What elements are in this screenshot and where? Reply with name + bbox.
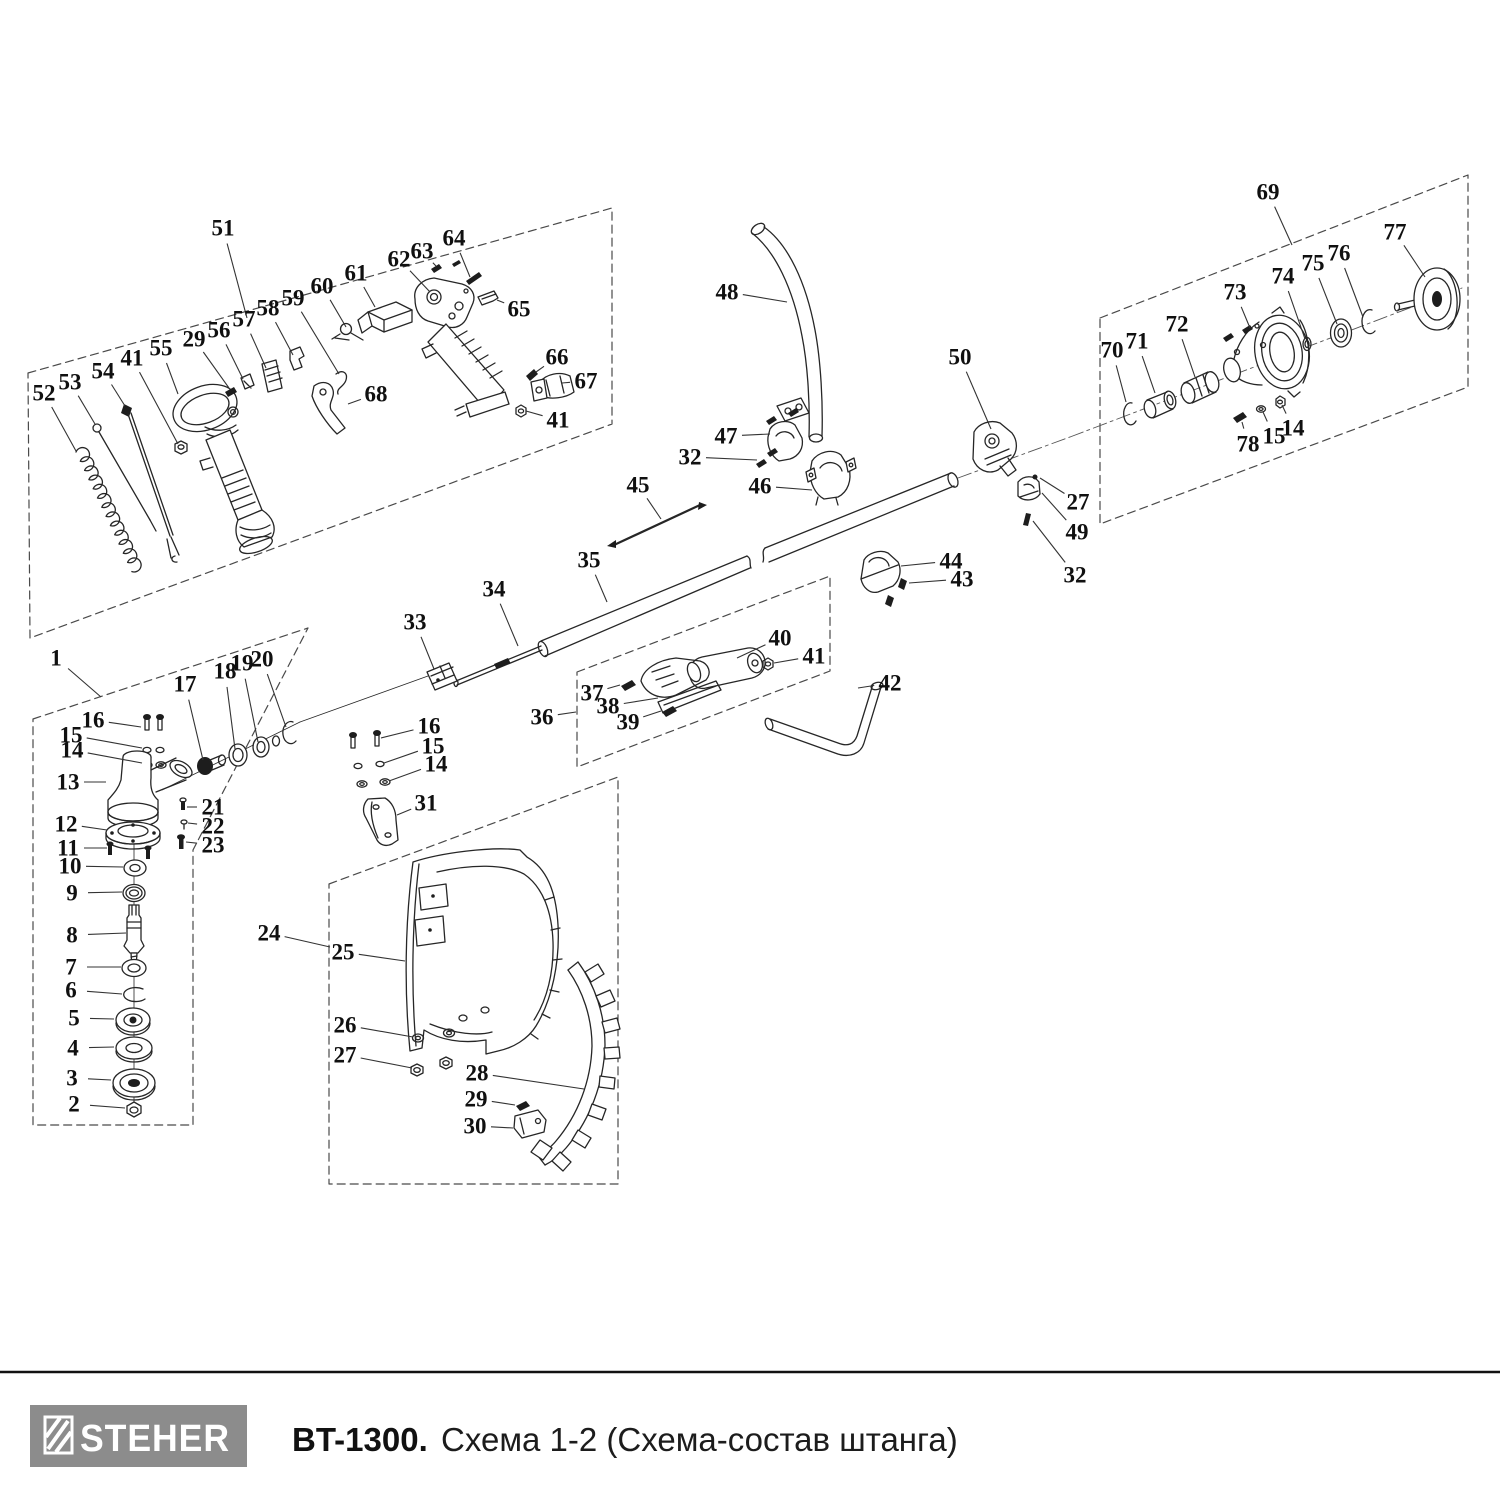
- part-54-cable-sheath: [121, 404, 179, 562]
- leader-line-28: [493, 1075, 584, 1089]
- part-callout-66: 66: [546, 345, 569, 370]
- part-32-screw: [1023, 513, 1031, 526]
- part-callout-32: 32: [679, 445, 702, 470]
- part-18-bearing: [229, 744, 247, 766]
- part-27-screw: [1033, 475, 1038, 480]
- leader-line-33: [421, 637, 434, 669]
- leader-line-15: [1263, 412, 1267, 422]
- part-59-spring-wire: [336, 372, 346, 394]
- leader-line-77: [1404, 245, 1425, 277]
- leader-line-32: [706, 458, 757, 460]
- part-callout-47: 47: [715, 424, 738, 449]
- part-callout-65: 65: [508, 297, 531, 322]
- leader-line-48: [743, 295, 787, 302]
- leader-line-34: [500, 604, 518, 646]
- part-callout-53: 53: [59, 370, 82, 395]
- part-30-bracket: [514, 1110, 546, 1138]
- leader-line-15: [87, 738, 142, 748]
- leader-line-76: [1345, 268, 1363, 317]
- part-50-hanger-bracket: [973, 422, 1016, 476]
- doc-subtitle: Схема 1-2 (Схема-состав штанга): [441, 1421, 958, 1458]
- leader-line-49: [1042, 493, 1066, 520]
- leader-line-64: [460, 253, 470, 277]
- part-77-clutch-drum: [1395, 268, 1461, 330]
- part-71-bushing: [1142, 390, 1177, 419]
- part-16-bolts: [349, 730, 381, 748]
- part-callout-41: 41: [121, 346, 144, 371]
- part-callout-42: 42: [879, 671, 902, 696]
- footer: STEHER BT-1300. Схема 1-2 (Схема-состав …: [0, 1372, 1500, 1467]
- part-callout-49: 49: [1066, 520, 1089, 545]
- part-66-screw: [526, 369, 538, 381]
- part-73-clutch-housing: [1221, 307, 1315, 397]
- doc-model: BT-1300.: [292, 1421, 428, 1458]
- part-33-coupler: [427, 663, 457, 690]
- part-callout-23: 23: [202, 833, 225, 858]
- assembly-clutch-housing: [1124, 268, 1460, 425]
- leader-line-27: [361, 1058, 412, 1068]
- leader-line-65: [497, 300, 504, 303]
- part-callout-14: 14: [1282, 416, 1306, 441]
- part-41-nut: [175, 441, 187, 454]
- part-callout-43: 43: [951, 567, 974, 592]
- part-callout-67: 67: [575, 369, 598, 394]
- part-callout-78: 78: [1237, 432, 1260, 457]
- part-callout-56: 56: [208, 318, 231, 343]
- part-callout-39: 39: [617, 710, 640, 735]
- part-callout-8: 8: [66, 923, 78, 948]
- leader-line-26: [361, 1028, 413, 1037]
- leader-line-37: [607, 685, 620, 689]
- leader-line-43: [909, 580, 946, 583]
- part-callout-20: 20: [251, 647, 274, 672]
- part-callout-25: 25: [332, 940, 355, 965]
- part-3-holder-lower: [113, 1069, 155, 1100]
- part-37-screw: [621, 680, 636, 691]
- leader-line-35: [595, 575, 607, 602]
- part-76-circlip: [1362, 310, 1375, 334]
- part-callout-33: 33: [404, 610, 427, 635]
- leader-line-41: [526, 411, 543, 416]
- leader-line-73: [1241, 307, 1250, 328]
- boundary-handle-assembly: [28, 208, 612, 638]
- leader-line-44: [901, 563, 935, 566]
- leader-line-57: [251, 334, 266, 368]
- part-27-nuts: [411, 1057, 452, 1076]
- part-callout-35: 35: [578, 548, 601, 573]
- leader-line-9: [88, 892, 122, 893]
- part-callout-30: 30: [464, 1114, 487, 1139]
- part-callout-28: 28: [466, 1061, 489, 1086]
- part-9-bearing: [123, 885, 145, 902]
- part-56-clip: [241, 374, 254, 389]
- leader-line-10: [86, 866, 123, 867]
- part-53-cable: [93, 424, 156, 531]
- part-callout-60: 60: [311, 274, 334, 299]
- leader-line-27: [1040, 478, 1065, 494]
- part-78-screw: [1233, 412, 1247, 423]
- leader-line-29: [203, 352, 229, 388]
- part-45-rod: [607, 502, 707, 548]
- part-callout-58: 58: [257, 296, 280, 321]
- leader-line-16: [109, 722, 141, 727]
- part-callout-27: 27: [334, 1043, 357, 1068]
- part-68-throttle-lever: [312, 383, 345, 434]
- part-42-handlebar-left: [764, 681, 884, 755]
- part-callout-1: 1: [50, 646, 62, 671]
- part-15-washer: [1257, 406, 1266, 412]
- part-callout-29: 29: [183, 327, 206, 352]
- leader-line-1: [68, 669, 101, 698]
- part-callout-63: 63: [411, 239, 434, 264]
- leader-line-66: [536, 366, 544, 372]
- leader-line-19: [245, 679, 258, 742]
- part-callout-75: 75: [1302, 251, 1325, 276]
- leader-line-2: [90, 1105, 125, 1108]
- part-62-handle-housing: [415, 278, 509, 417]
- part-callout-36: 36: [531, 705, 554, 730]
- part-callout-72: 72: [1166, 312, 1189, 337]
- part-7-bearing: [122, 960, 146, 977]
- part-25-guard: [406, 849, 562, 1054]
- part-34-drive-shaft: [454, 646, 542, 687]
- leader-line-59: [301, 312, 339, 374]
- part-callout-46: 46: [749, 474, 772, 499]
- part-callout-62: 62: [388, 247, 411, 272]
- part-12-flange: [106, 822, 160, 849]
- part-callout-34: 34: [483, 577, 507, 602]
- leader-line-67: [562, 382, 570, 383]
- part-callout-13: 13: [57, 770, 80, 795]
- leader-line-69: [1275, 207, 1292, 245]
- part-46-clamp-lower: [806, 451, 856, 505]
- part-41-nut: [516, 405, 526, 417]
- part-callout-68: 68: [365, 382, 388, 407]
- leader-line-22: [188, 823, 197, 824]
- part-callout-52: 52: [33, 381, 56, 406]
- part-callout-29: 29: [465, 1087, 488, 1112]
- part-38-grip-housing: [641, 658, 721, 713]
- leader-line-36: [558, 712, 576, 715]
- leader-line-58: [276, 322, 294, 355]
- part-44-hanger-clamp: [861, 551, 907, 607]
- part-17-pinion: [197, 755, 226, 775]
- part-callout-61: 61: [345, 261, 368, 286]
- assembly-throttle-handle: [76, 260, 574, 572]
- leader-line-32: [1033, 521, 1065, 562]
- part-callout-71: 71: [1126, 329, 1149, 354]
- part-4-washer: [116, 1037, 152, 1062]
- part-callout-2: 2: [68, 1092, 80, 1117]
- exploded-parts-diagram: 5152535441552956575859606162636465666741…: [0, 0, 1500, 1500]
- part-2-nut: [127, 1102, 141, 1117]
- part-callout-14: 14: [425, 752, 449, 777]
- part-callout-27: 27: [1067, 490, 1090, 515]
- part-65-clip: [478, 291, 498, 305]
- leader-line-56: [226, 344, 243, 379]
- part-14-washers: [357, 779, 390, 787]
- leader-line-41: [140, 372, 179, 444]
- leader-line-18: [227, 687, 235, 749]
- part-callout-69: 69: [1257, 180, 1280, 205]
- part-callout-51: 51: [212, 216, 235, 241]
- part-5-holder-upper: [116, 1008, 150, 1035]
- part-61-switch: [358, 302, 412, 333]
- part-callout-5: 5: [68, 1006, 80, 1031]
- leader-line-41: [774, 659, 798, 663]
- part-callout-45: 45: [627, 473, 650, 498]
- part-callout-6: 6: [65, 978, 77, 1003]
- leader-line-78: [1242, 422, 1244, 429]
- part-callout-16: 16: [82, 708, 105, 733]
- part-callout-70: 70: [1101, 338, 1124, 363]
- leader-line-72: [1182, 339, 1195, 377]
- leader-line-46: [776, 487, 812, 490]
- leader-line-8: [88, 933, 126, 934]
- leader-line-4: [89, 1047, 114, 1048]
- leader-line-30: [491, 1127, 513, 1128]
- part-16-bolts: [143, 714, 164, 730]
- part-23-bolt: [177, 834, 185, 849]
- part-callout-17: 17: [174, 672, 197, 697]
- leader-line-53: [78, 396, 95, 424]
- part-callout-41: 41: [803, 644, 826, 669]
- leader-line-75: [1319, 278, 1337, 324]
- part-58-lock-button: [290, 347, 304, 370]
- leader-line-52: [52, 407, 76, 451]
- part-22-screw: [181, 820, 187, 829]
- leader-line-39: [643, 711, 661, 717]
- part-8-output-shaft: [124, 905, 144, 967]
- part-callout-76: 76: [1328, 241, 1351, 266]
- part-callout-41: 41: [547, 408, 570, 433]
- part-callout-4: 4: [67, 1036, 79, 1061]
- assembly-gear-head: [106, 714, 296, 1117]
- part-callout-40: 40: [769, 626, 792, 651]
- part-callout-10: 10: [59, 854, 82, 879]
- leader-line-25: [359, 954, 405, 961]
- part-13-gear-head-housing: [108, 751, 195, 827]
- part-callout-32: 32: [1064, 563, 1087, 588]
- leader-line-3: [88, 1079, 111, 1080]
- part-callout-26: 26: [334, 1013, 357, 1038]
- leader-line-31: [397, 809, 411, 815]
- part-callout-7: 7: [65, 955, 77, 980]
- part-60-cable-ring: [332, 324, 363, 341]
- part-55-front-handle: [166, 376, 274, 557]
- part-70-snap-ring: [1124, 403, 1136, 425]
- leader-line-54: [112, 385, 126, 407]
- page: 5152535441552956575859606162636465666741…: [0, 0, 1500, 1500]
- leader-line-17: [189, 700, 203, 760]
- part-callout-31: 31: [415, 791, 438, 816]
- leader-line-55: [167, 363, 179, 394]
- part-callout-12: 12: [55, 812, 78, 837]
- part-67-cable-clamp: [531, 374, 574, 401]
- part-callout-59: 59: [282, 286, 305, 311]
- leader-line-15: [384, 751, 418, 763]
- leader-line-24: [285, 937, 330, 947]
- part-callout-54: 54: [92, 359, 116, 384]
- leader-line-71: [1142, 356, 1155, 393]
- leader-line-23: [186, 842, 197, 843]
- part-callout-57: 57: [233, 307, 256, 332]
- part-49-clamp-half: [1018, 477, 1040, 500]
- leader-line-16: [381, 730, 414, 738]
- part-64-pin: [452, 260, 482, 285]
- part-callout-64: 64: [443, 226, 467, 251]
- part-21-screw: [180, 798, 186, 810]
- assembly-grip: [621, 648, 884, 756]
- leader-line-50: [966, 372, 991, 429]
- part-callout-55: 55: [150, 336, 173, 361]
- brand-logo-text: STEHER: [80, 1418, 230, 1460]
- leader-line-47: [742, 434, 770, 435]
- callout-layer: 5152535441552956575859606162636465666741…: [33, 180, 1426, 1139]
- part-callout-14: 14: [61, 738, 85, 763]
- part-75-bearing: [1331, 319, 1352, 347]
- part-callout-77: 77: [1384, 220, 1407, 245]
- part-10-bearing: [124, 860, 146, 876]
- part-callout-3: 3: [66, 1066, 78, 1091]
- leader-line-6: [87, 991, 122, 994]
- part-31-bracket: [364, 798, 398, 845]
- leader-line-38: [624, 698, 658, 704]
- part-29-screw: [516, 1101, 530, 1111]
- part-callout-74: 74: [1272, 264, 1296, 289]
- leader-line-5: [90, 1018, 114, 1019]
- part-callout-50: 50: [949, 345, 972, 370]
- leader-line-68: [348, 399, 361, 404]
- leader-line-45: [647, 498, 661, 519]
- leader-line-60: [330, 300, 346, 327]
- leader-line-70: [1116, 365, 1126, 402]
- part-callout-24: 24: [258, 921, 282, 946]
- leader-line-14: [389, 769, 421, 781]
- part-52-spring: [76, 448, 141, 572]
- part-63-screw: [431, 264, 442, 273]
- leader-line-29: [492, 1101, 515, 1105]
- part-callout-73: 73: [1224, 280, 1247, 305]
- leader-line-61: [364, 287, 375, 307]
- part-14-nut: [1276, 396, 1285, 408]
- leader-line-12: [82, 826, 107, 830]
- part-callout-48: 48: [716, 280, 739, 305]
- part-15-washers: [354, 761, 384, 768]
- part-callout-9: 9: [66, 881, 78, 906]
